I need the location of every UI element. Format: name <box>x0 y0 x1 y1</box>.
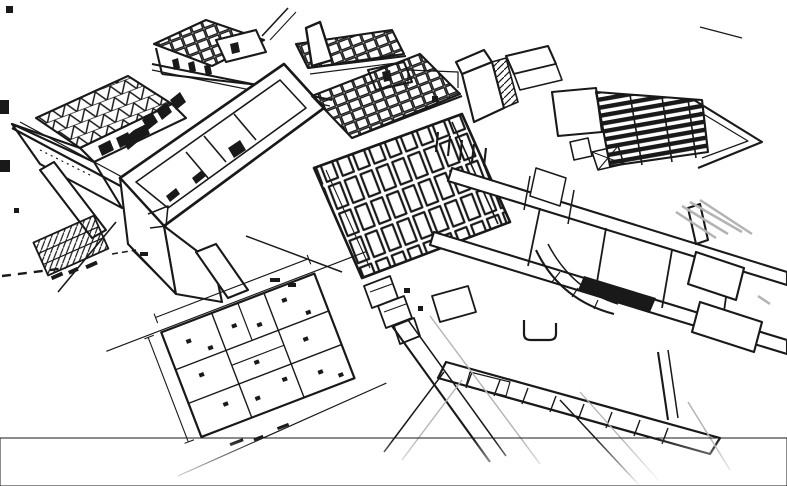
pier-band <box>438 320 720 454</box>
sketch-image <box>0 0 787 486</box>
pointed-end-wall <box>306 22 332 66</box>
terrace <box>692 302 762 352</box>
architectural-sketch-figure: Hand-drawn style monochrome sketch of a … <box>0 0 787 486</box>
louver-panel <box>596 92 708 166</box>
louver-roof <box>552 27 762 170</box>
center-joist-grid <box>314 114 510 344</box>
bottom-fade <box>0 438 787 486</box>
plan-annotation-ticks <box>184 288 344 424</box>
hook-detail <box>524 320 556 340</box>
margin-marks <box>0 6 19 213</box>
sketch-canvas: Hand-drawn style monochrome sketch of a … <box>0 0 787 486</box>
parapet-outer <box>120 64 324 226</box>
